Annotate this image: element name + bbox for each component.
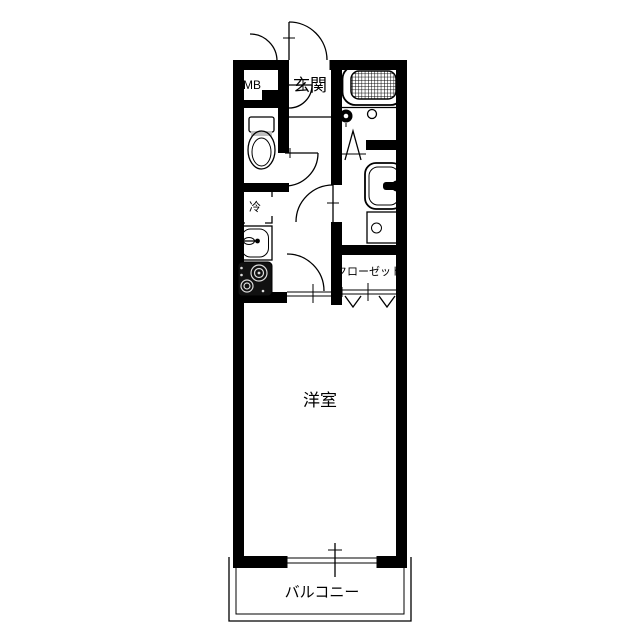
wall-segment bbox=[366, 140, 407, 150]
wall-segment bbox=[278, 108, 289, 153]
refrigerator-label: 冷 bbox=[249, 200, 261, 214]
wall-segment bbox=[278, 186, 289, 192]
closet-label: クローゼット bbox=[336, 265, 402, 278]
washbasin-faucet-base bbox=[392, 181, 403, 192]
wall-segment bbox=[377, 556, 407, 568]
western-room-label: 洋室 bbox=[303, 391, 337, 410]
entrance-label: 玄関 bbox=[293, 76, 327, 95]
stove-burner-large-center bbox=[258, 272, 261, 275]
balcony-label: バルコニー bbox=[285, 584, 360, 601]
faucet-knob bbox=[344, 114, 349, 119]
stove-knob bbox=[240, 274, 243, 277]
wall-segment bbox=[233, 100, 289, 108]
background bbox=[0, 0, 640, 640]
wall-segment bbox=[233, 556, 287, 568]
wall-segment bbox=[331, 245, 407, 255]
floor-plan: 冷 bbox=[0, 0, 640, 640]
bathtub-basin bbox=[351, 71, 396, 99]
wall-segment bbox=[331, 222, 342, 305]
stove-knob bbox=[262, 290, 265, 293]
floor-plan-page: 冷 bbox=[0, 0, 640, 640]
wall-segment bbox=[331, 60, 342, 185]
meter-box-label: MB bbox=[243, 78, 261, 92]
wall-segment bbox=[233, 60, 244, 568]
gas-stove bbox=[238, 262, 272, 296]
stove-knob bbox=[240, 267, 243, 270]
sink-faucet-tip bbox=[255, 239, 260, 244]
